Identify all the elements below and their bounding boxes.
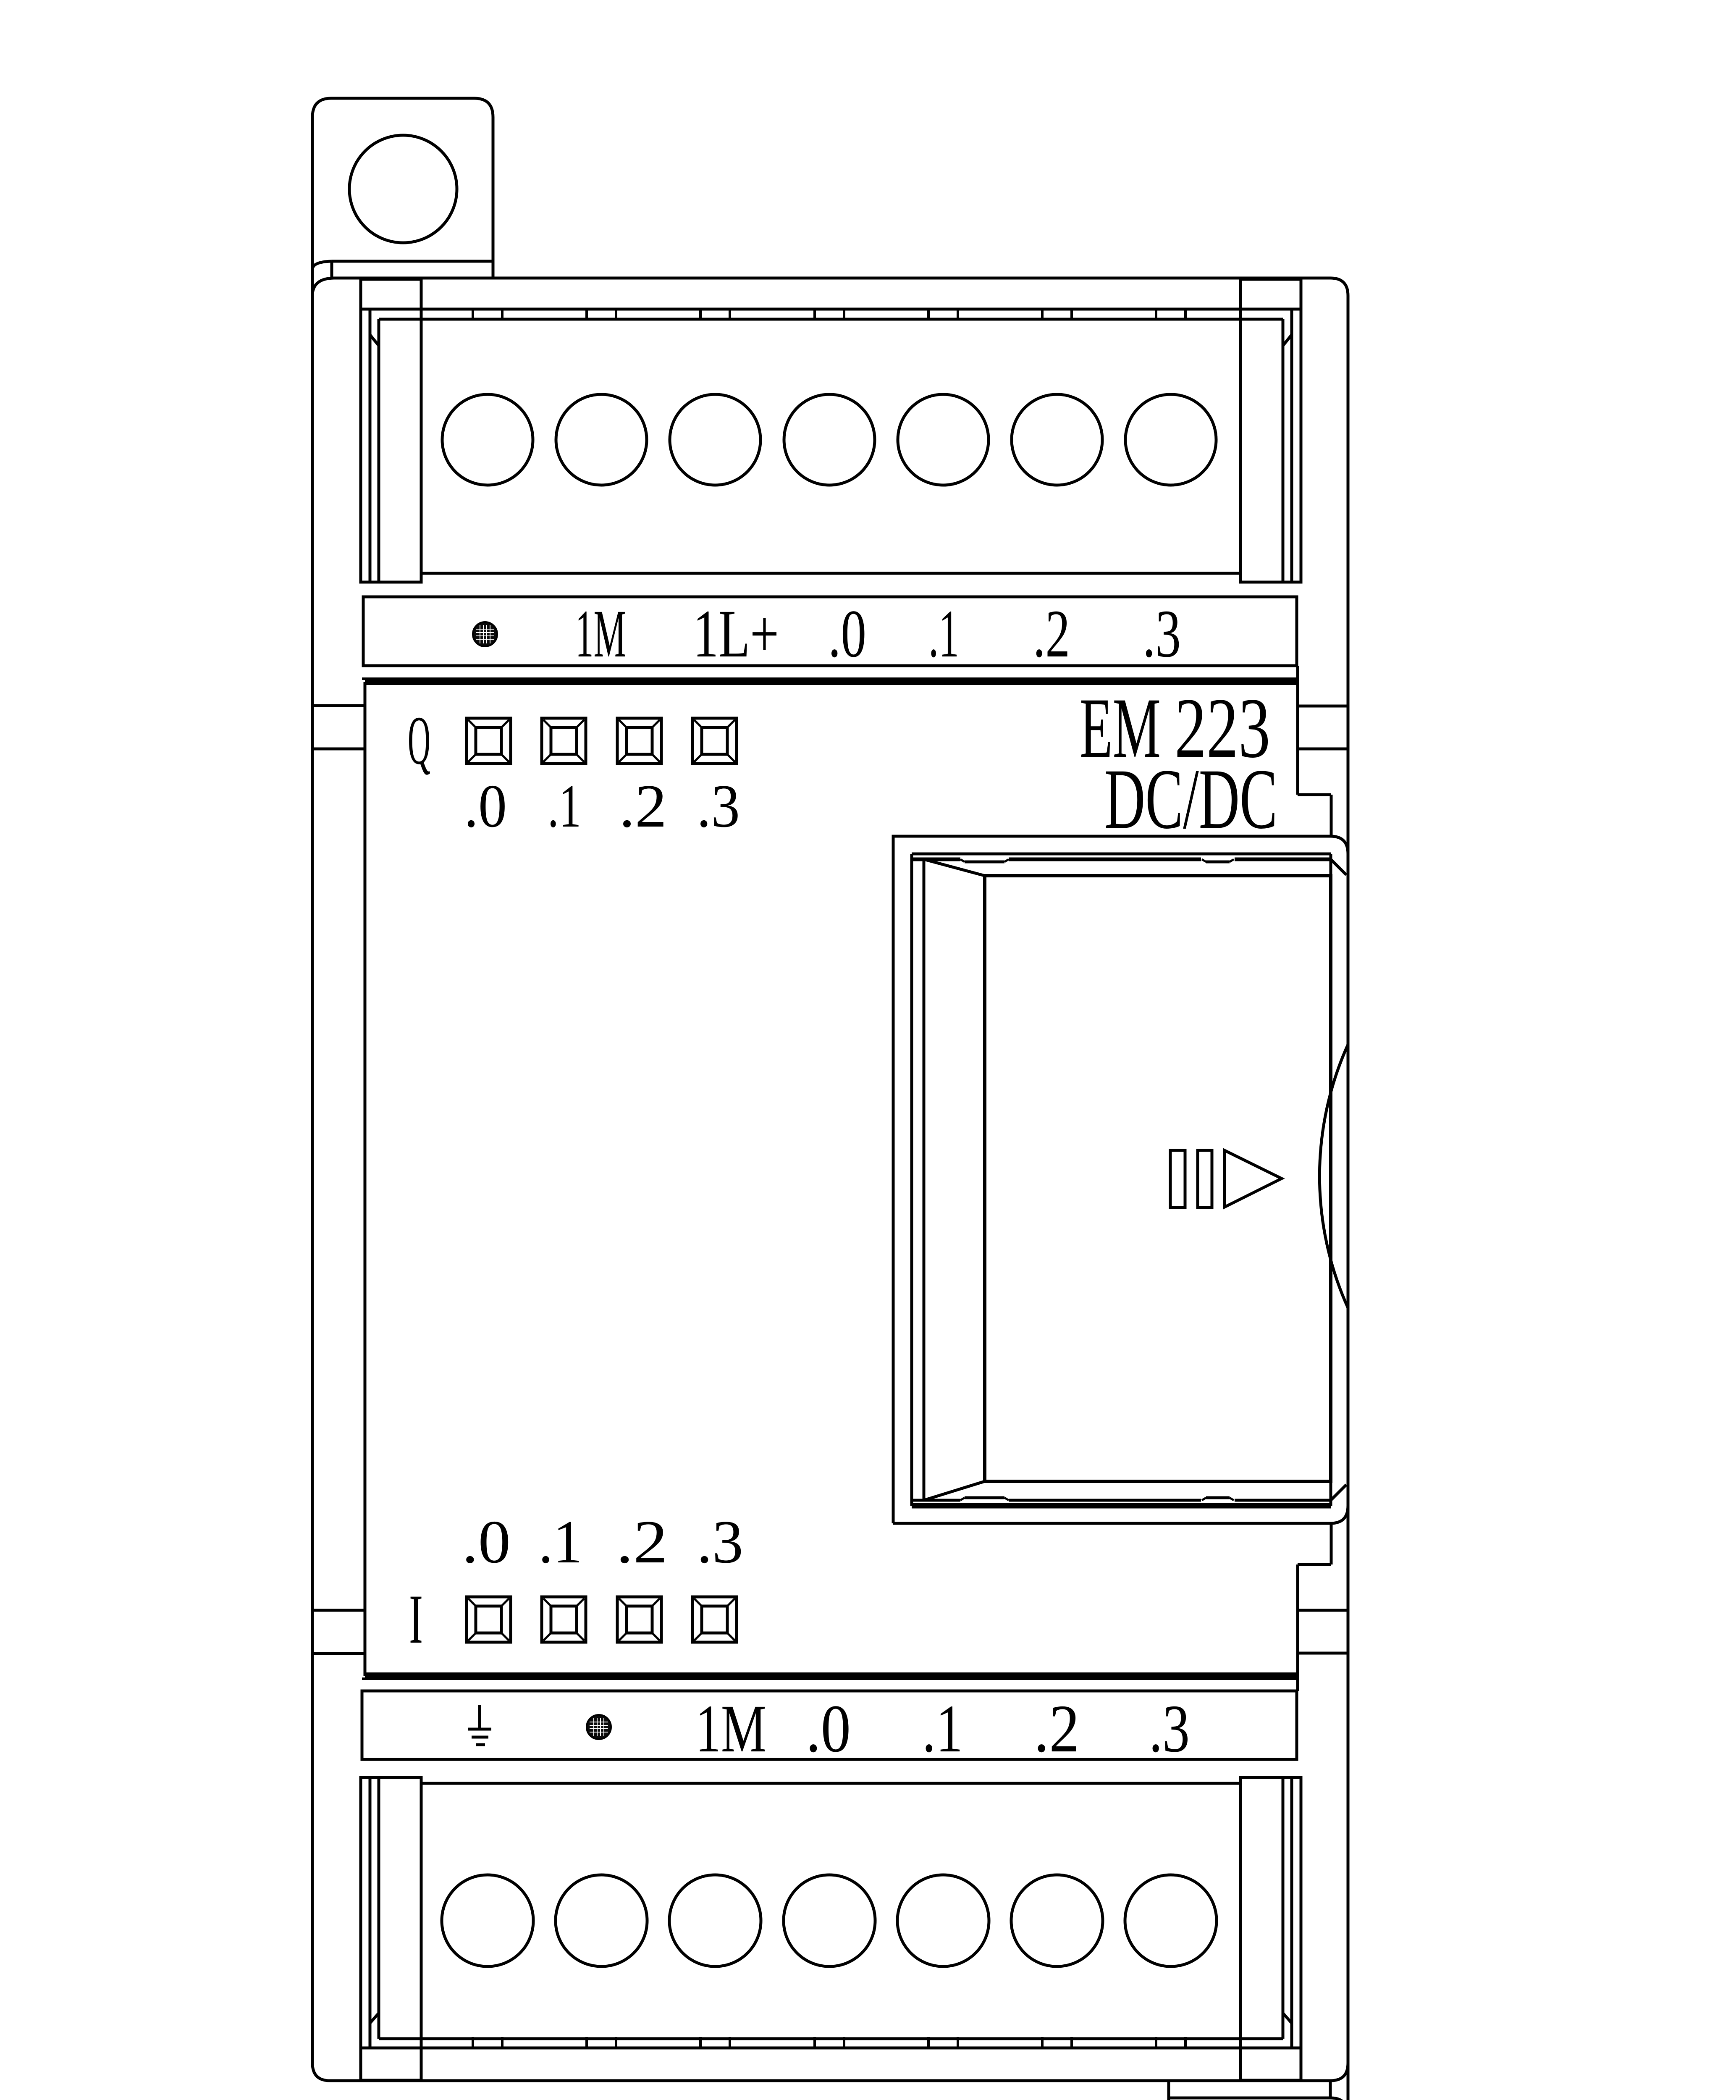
svg-text:1L+: 1L+ [693,596,779,672]
svg-text:DC/DC: DC/DC [1104,751,1277,847]
svg-text:Q: Q [408,702,430,779]
svg-text:.3: .3 [697,1508,743,1576]
svg-text:.1: .1 [548,772,581,840]
svg-text:.2: .2 [616,1508,668,1576]
svg-text:.0: .0 [806,1691,851,1767]
svg-text:1M: 1M [575,596,626,672]
svg-text:.2: .2 [1034,1691,1080,1767]
svg-text:.0: .0 [462,1508,511,1576]
svg-text:.2: .2 [1033,596,1070,672]
svg-text:.0: .0 [464,772,507,840]
svg-text:.1: .1 [922,1691,963,1767]
svg-text:I: I [409,1580,423,1658]
svg-text:.3: .3 [697,772,740,840]
svg-text:1M: 1M [695,1691,766,1767]
svg-text:.0: .0 [828,596,866,672]
svg-text:.1: .1 [538,1508,582,1576]
svg-text:.1: .1 [928,596,959,672]
svg-text:.3: .3 [1143,596,1181,672]
svg-text:.2: .2 [619,772,667,840]
svg-text:.3: .3 [1149,1691,1190,1767]
